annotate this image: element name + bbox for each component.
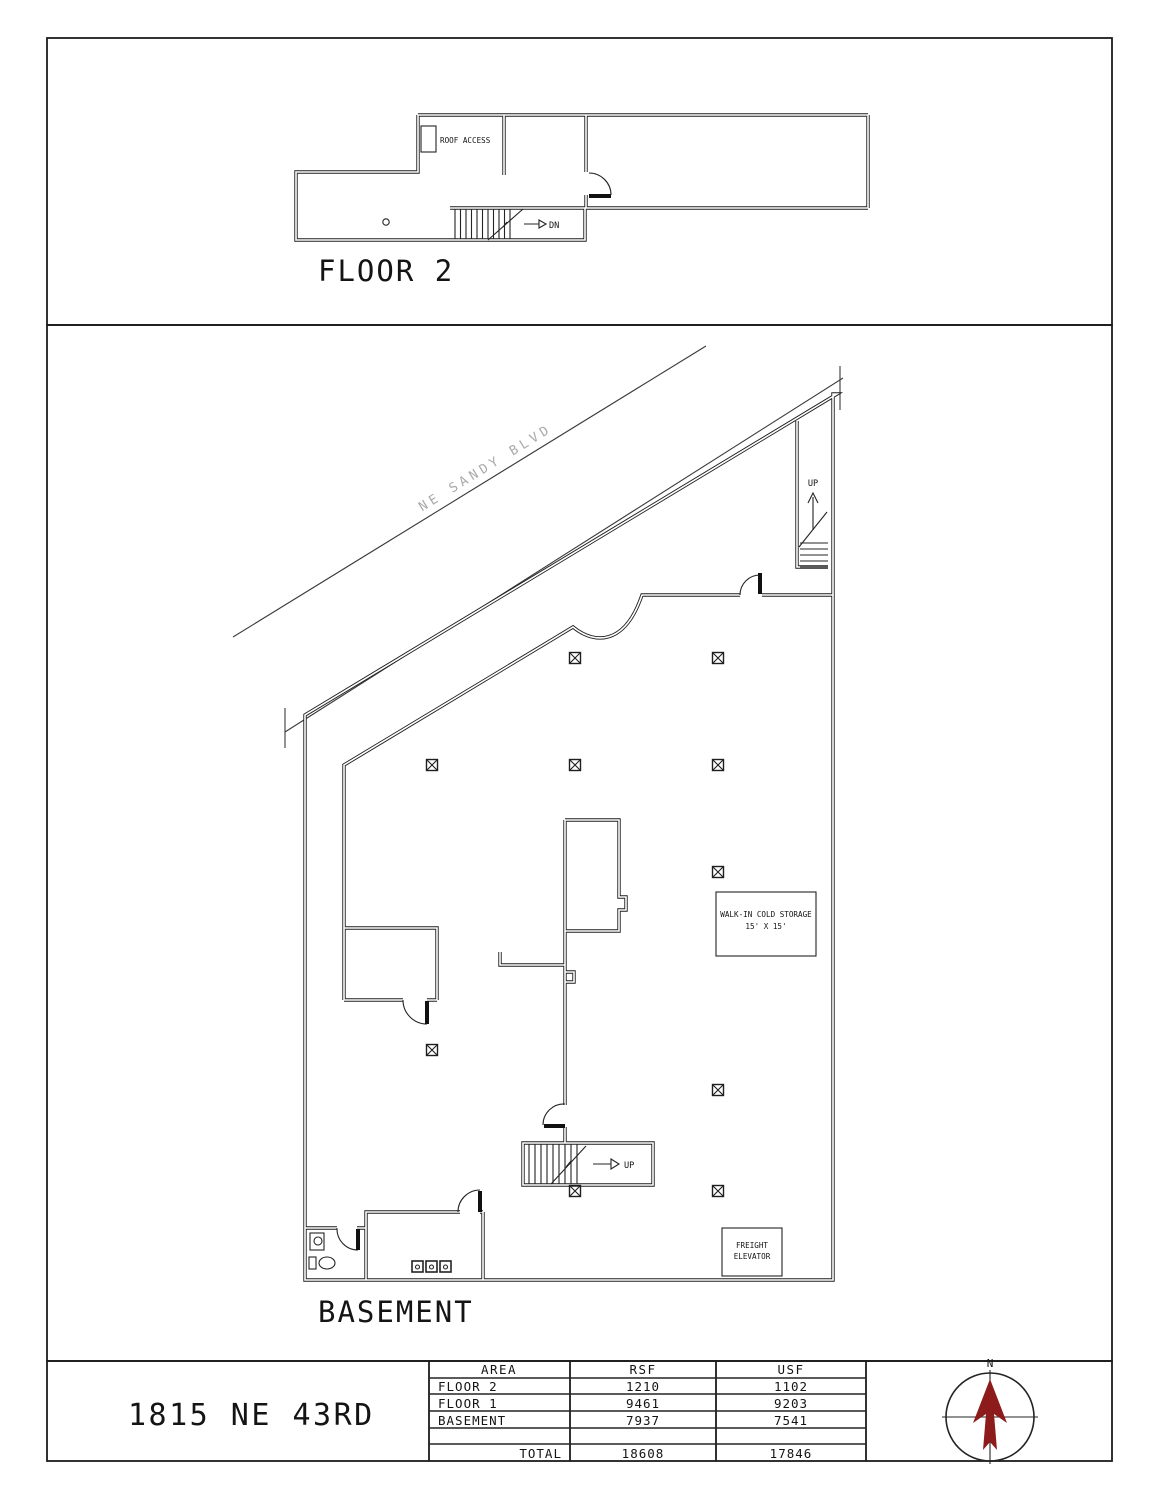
- col-header-rsf: RSF: [629, 1362, 656, 1377]
- floorplan-drawing: ROOF ACCESS DN FLOOR 2 NE SANDY BLVD UP …: [0, 0, 1159, 1500]
- property-line-ticks: [285, 366, 840, 748]
- row-basement-usf: 7541: [774, 1413, 808, 1428]
- toilet-icon: [319, 1257, 335, 1269]
- floor2-door-arc: [589, 173, 611, 195]
- roof-hatch: [421, 126, 436, 152]
- floor2-title: FLOOR 2: [318, 254, 454, 288]
- toilet-tank-icon: [309, 1257, 316, 1269]
- floor2-plan: ROOF ACCESS DN FLOOR 2: [296, 115, 868, 288]
- area-table: AREA RSF USF FLOOR 2 1210 1102 FLOOR 1 9…: [429, 1361, 866, 1461]
- freight-label-line2: ELEVATOR: [734, 1252, 771, 1261]
- address-title: 1815 NE 43RD: [128, 1398, 375, 1433]
- down-arrow-icon: [524, 220, 546, 228]
- table-row: FLOOR 1 9461 9203: [438, 1396, 808, 1411]
- col-header-area: AREA: [481, 1362, 517, 1377]
- urinal-icon: [440, 1261, 451, 1272]
- property-line-outer: [233, 346, 706, 637]
- north-label: N: [987, 1357, 994, 1370]
- dn-label: DN: [549, 221, 559, 231]
- basement-sheet-border: [47, 325, 1112, 1361]
- floor2-stair-treads: [455, 209, 510, 239]
- floor2-sheet-border: [47, 38, 1112, 325]
- table-row: BASEMENT 7937 7541: [438, 1413, 808, 1428]
- row-floor1-area: FLOOR 1: [438, 1396, 498, 1411]
- title-block: 1815 NE 43RD AREA RSF USF FLOOR 2 1210 1…: [128, 1357, 1038, 1464]
- floorplan-sheet: ROOF ACCESS DN FLOOR 2 NE SANDY BLVD UP …: [0, 0, 1159, 1500]
- col-header-usf: USF: [777, 1362, 804, 1377]
- urinal-icon: [412, 1261, 423, 1272]
- freight-label-line1: FREIGHT: [736, 1241, 768, 1250]
- basement-plan: NE SANDY BLVD UP UP WALK-IN COLD STORAGE…: [233, 346, 843, 1329]
- property-line-inner: [285, 378, 843, 732]
- up-top-label: UP: [808, 479, 818, 489]
- cold-storage-label-line1: WALK-IN COLD STORAGE: [720, 910, 812, 919]
- row-basement-rsf: 7937: [626, 1413, 660, 1428]
- floor-drain: [383, 219, 389, 225]
- stair-center-break-line: [551, 1146, 586, 1184]
- basement-door-arcs: [337, 575, 760, 1250]
- sheet-frames: [47, 38, 1112, 1461]
- north-compass: N: [942, 1357, 1038, 1464]
- column-markers: [427, 653, 724, 1197]
- restroom-fixtures: [309, 1233, 451, 1272]
- row-basement-area: BASEMENT: [438, 1413, 506, 1428]
- street-label: NE SANDY BLVD: [416, 422, 555, 515]
- north-arrow-icon: [973, 1379, 1007, 1450]
- table-row: FLOOR 2 1210 1102: [438, 1379, 808, 1394]
- row-floor2-rsf: 1210: [626, 1379, 660, 1394]
- row-floor1-usf: 9203: [774, 1396, 808, 1411]
- up-arrow-center-icon: [593, 1159, 619, 1169]
- row-floor2-area: FLOOR 2: [438, 1379, 498, 1394]
- roof-access-label: ROOF ACCESS: [440, 136, 491, 145]
- total-usf: 17846: [770, 1446, 813, 1461]
- row-floor1-rsf: 9461: [626, 1396, 660, 1411]
- row-floor2-usf: 1102: [774, 1379, 808, 1394]
- total-label: TOTAL: [519, 1446, 562, 1461]
- urinal-icon: [426, 1261, 437, 1272]
- cold-storage-label-line2: 15' X 15': [745, 922, 786, 931]
- stair-top-treads: [800, 543, 828, 567]
- table-total-row: TOTAL 18608 17846: [519, 1446, 812, 1461]
- up-center-label: UP: [624, 1161, 634, 1171]
- total-rsf: 18608: [622, 1446, 665, 1461]
- basement-title: BASEMENT: [318, 1295, 474, 1329]
